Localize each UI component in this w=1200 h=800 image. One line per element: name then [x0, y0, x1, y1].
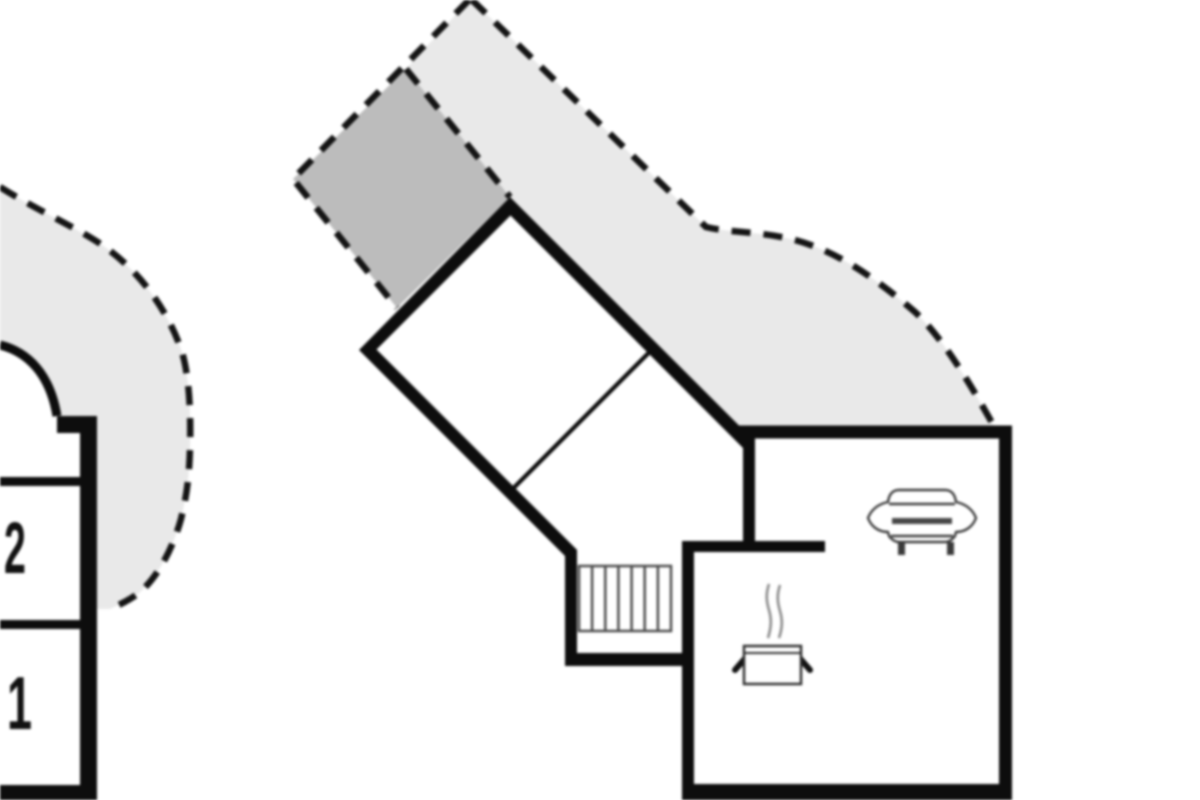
svg-text:2: 2 [4, 508, 26, 589]
svg-text:1: 1 [7, 662, 32, 746]
